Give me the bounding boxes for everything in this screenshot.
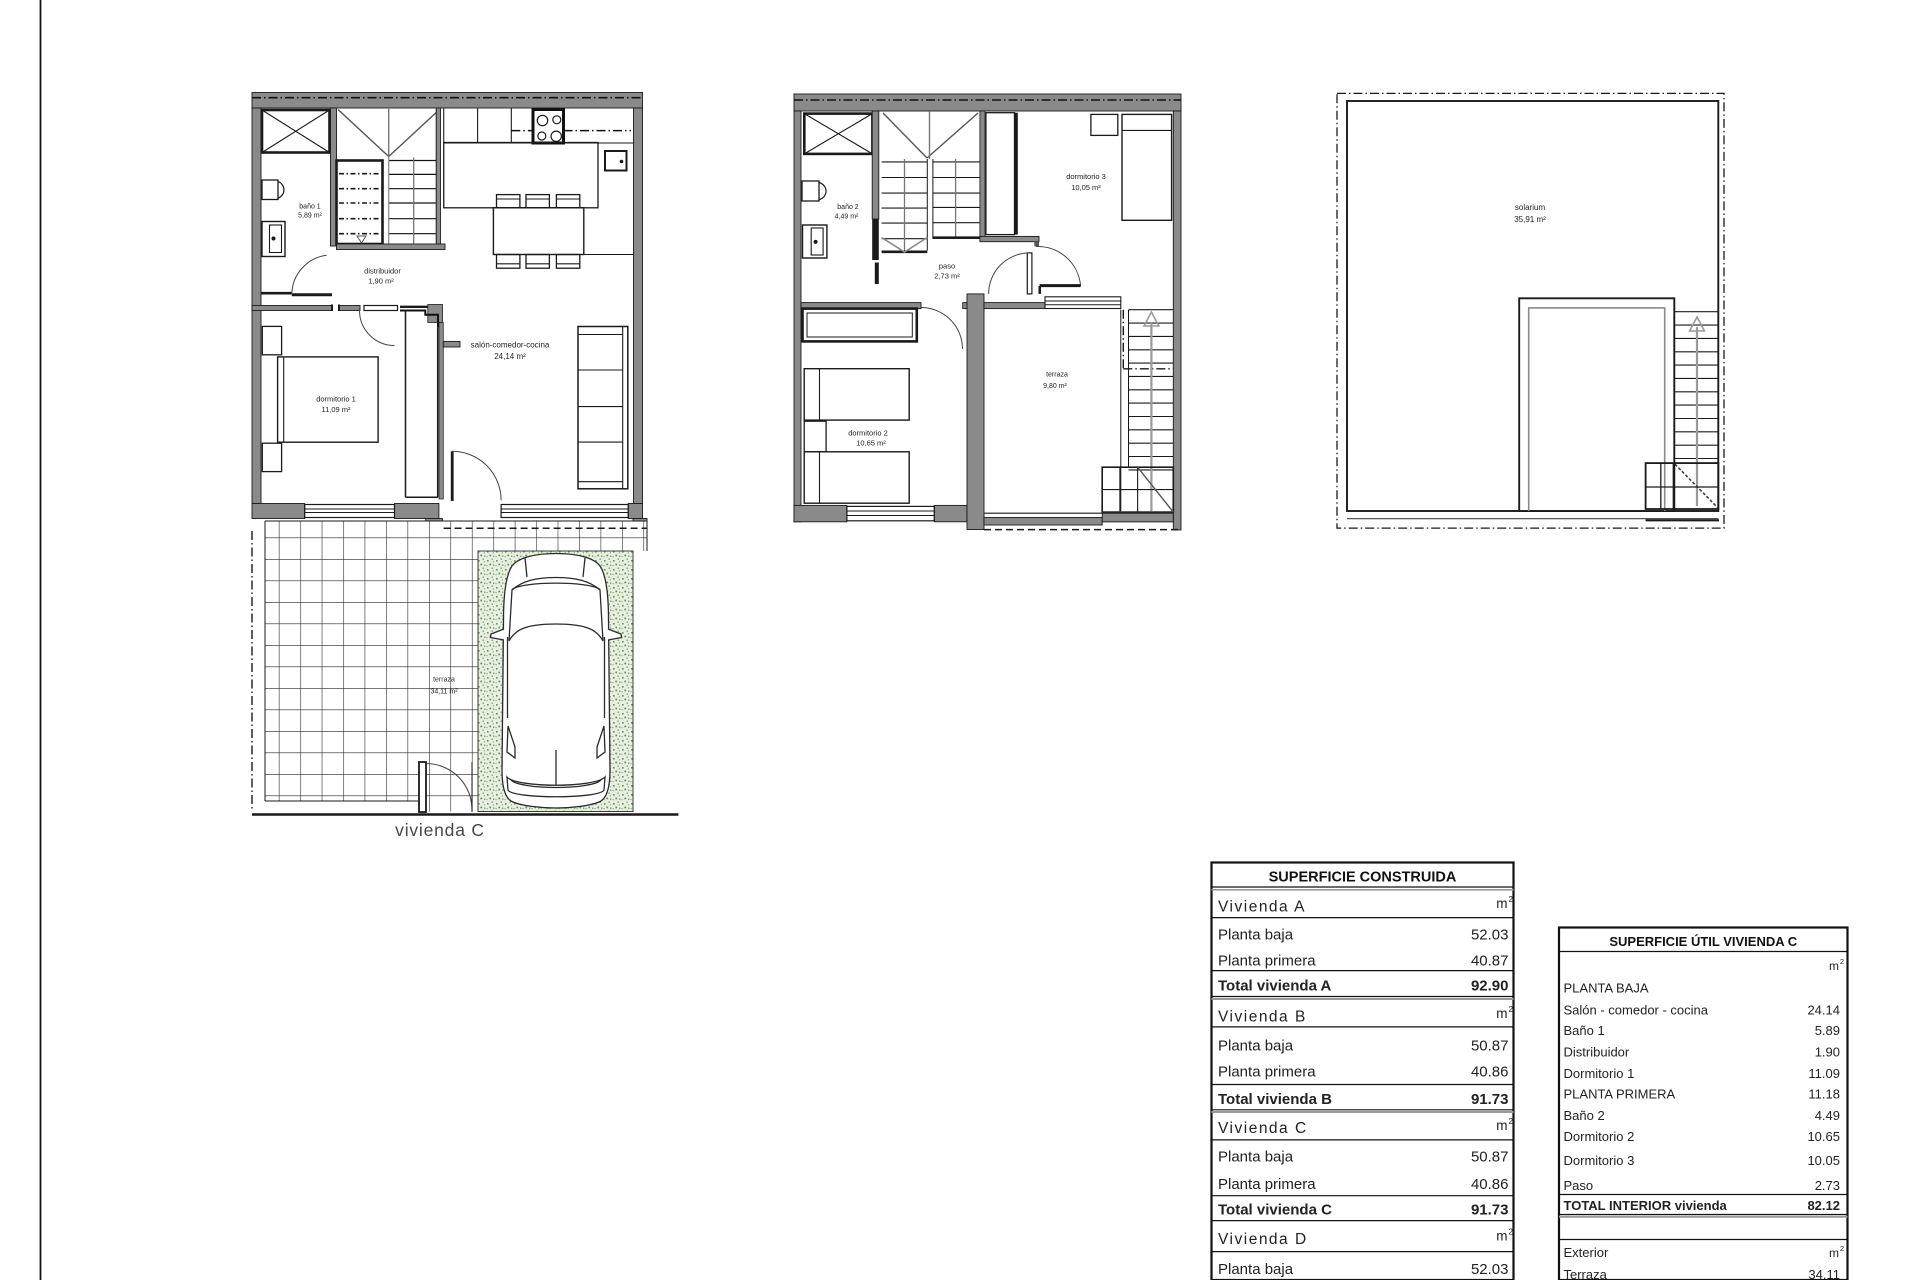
svg-text:baño 1: baño 1 bbox=[299, 204, 321, 211]
svg-text:2.73: 2.73 bbox=[1815, 1178, 1840, 1193]
svg-text:Planta baja: Planta baja bbox=[1218, 927, 1294, 944]
svg-text:baño 2: baño 2 bbox=[837, 204, 859, 211]
svg-text:1.90: 1.90 bbox=[1815, 1045, 1840, 1060]
svg-text:Planta baja: Planta baja bbox=[1218, 1149, 1294, 1166]
svg-text:Total vivienda A: Total vivienda A bbox=[1218, 978, 1332, 995]
svg-text:m: m bbox=[1496, 1006, 1507, 1021]
svg-text:solarium: solarium bbox=[1515, 203, 1546, 212]
svg-text:Vivienda A: Vivienda A bbox=[1218, 899, 1306, 916]
svg-text:Exterior: Exterior bbox=[1564, 1245, 1609, 1260]
svg-text:m: m bbox=[1496, 896, 1507, 911]
svg-text:11,09 m²: 11,09 m² bbox=[321, 405, 351, 414]
svg-text:10.65: 10.65 bbox=[1807, 1129, 1840, 1144]
svg-text:9,80 m²: 9,80 m² bbox=[1043, 383, 1067, 390]
svg-text:SUPERFICIE ÚTIL VIVIENDA C: SUPERFICIE ÚTIL VIVIENDA C bbox=[1609, 934, 1797, 949]
svg-text:Dormitorio 2: Dormitorio 2 bbox=[1564, 1129, 1635, 1144]
svg-text:34,11 m²: 34,11 m² bbox=[430, 689, 458, 696]
svg-text:Planta primera: Planta primera bbox=[1218, 1064, 1316, 1081]
svg-text:4.49: 4.49 bbox=[1815, 1108, 1840, 1123]
svg-text:Planta primera: Planta primera bbox=[1218, 953, 1316, 970]
svg-text:2,73 m²: 2,73 m² bbox=[934, 272, 960, 281]
svg-text:34.11: 34.11 bbox=[1808, 1267, 1840, 1280]
svg-text:m: m bbox=[1496, 1229, 1507, 1244]
svg-text:24.14: 24.14 bbox=[1807, 1003, 1840, 1018]
svg-text:dormitorio 2: dormitorio 2 bbox=[848, 429, 888, 438]
svg-text:52.03: 52.03 bbox=[1471, 927, 1509, 944]
svg-text:2: 2 bbox=[1840, 1244, 1844, 1253]
svg-text:Dormitorio 1: Dormitorio 1 bbox=[1564, 1066, 1635, 1081]
svg-text:11.18: 11.18 bbox=[1808, 1087, 1840, 1102]
svg-text:1,90 m²: 1,90 m² bbox=[368, 277, 394, 286]
svg-text:dormitorio 3: dormitorio 3 bbox=[1066, 172, 1106, 181]
svg-text:salón-comedor-cocina: salón-comedor-cocina bbox=[471, 341, 550, 350]
svg-text:Vivienda D: Vivienda D bbox=[1218, 1231, 1308, 1248]
svg-text:distribuidor: distribuidor bbox=[364, 267, 401, 276]
svg-text:2: 2 bbox=[1509, 1005, 1514, 1014]
svg-text:Terraza: Terraza bbox=[1564, 1267, 1608, 1280]
svg-text:TOTAL INTERIOR vivienda: TOTAL INTERIOR vivienda bbox=[1564, 1198, 1728, 1213]
svg-text:10,65 m²: 10,65 m² bbox=[856, 439, 886, 448]
svg-text:PLANTA PRIMERA: PLANTA PRIMERA bbox=[1564, 1087, 1676, 1102]
svg-text:Planta baja: Planta baja bbox=[1218, 1038, 1294, 1055]
svg-text:Distribuidor: Distribuidor bbox=[1564, 1045, 1630, 1060]
svg-text:91.73: 91.73 bbox=[1471, 1202, 1509, 1219]
svg-text:Total vivienda C: Total vivienda C bbox=[1218, 1202, 1332, 1219]
svg-text:10.05: 10.05 bbox=[1807, 1153, 1840, 1168]
svg-text:4,49 m²: 4,49 m² bbox=[835, 214, 859, 221]
svg-text:Vivienda C: Vivienda C bbox=[1218, 1120, 1308, 1137]
svg-text:Planta primera: Planta primera bbox=[1218, 1176, 1316, 1193]
svg-text:Vivienda B: Vivienda B bbox=[1218, 1009, 1307, 1026]
svg-text:Baño 1: Baño 1 bbox=[1564, 1023, 1605, 1038]
svg-text:paso: paso bbox=[939, 262, 955, 271]
svg-text:2: 2 bbox=[1509, 1228, 1514, 1237]
svg-text:50.87: 50.87 bbox=[1471, 1149, 1509, 1166]
svg-text:Paso: Paso bbox=[1564, 1178, 1594, 1193]
svg-text:91.73: 91.73 bbox=[1471, 1091, 1509, 1108]
svg-text:SUPERFICIE CONSTRUIDA: SUPERFICIE CONSTRUIDA bbox=[1269, 870, 1457, 886]
svg-text:82.12: 82.12 bbox=[1807, 1198, 1840, 1213]
svg-text:2: 2 bbox=[1509, 1117, 1514, 1126]
svg-text:vivienda C: vivienda C bbox=[395, 820, 485, 840]
svg-text:2: 2 bbox=[1840, 957, 1844, 966]
svg-text:40.87: 40.87 bbox=[1471, 953, 1509, 970]
svg-text:Salón - comedor - cocina: Salón - comedor - cocina bbox=[1564, 1003, 1709, 1018]
svg-text:35,91 m²: 35,91 m² bbox=[1514, 215, 1546, 224]
svg-text:2: 2 bbox=[1509, 895, 1514, 904]
svg-text:52.03: 52.03 bbox=[1471, 1261, 1509, 1278]
svg-text:40.86: 40.86 bbox=[1471, 1176, 1509, 1193]
svg-text:92.90: 92.90 bbox=[1471, 978, 1509, 995]
svg-text:terraza: terraza bbox=[1046, 372, 1068, 379]
svg-text:5.89: 5.89 bbox=[1815, 1023, 1840, 1038]
svg-text:m: m bbox=[1829, 959, 1839, 973]
svg-text:10,05 m²: 10,05 m² bbox=[1071, 183, 1101, 192]
svg-text:m: m bbox=[1829, 1246, 1839, 1260]
svg-text:PLANTA BAJA: PLANTA BAJA bbox=[1564, 981, 1649, 996]
svg-text:40.86: 40.86 bbox=[1471, 1064, 1509, 1081]
svg-text:50.87: 50.87 bbox=[1471, 1038, 1509, 1055]
svg-text:11.09: 11.09 bbox=[1808, 1066, 1840, 1081]
svg-text:dormitorio 1: dormitorio 1 bbox=[316, 395, 356, 404]
svg-text:Total vivienda B: Total vivienda B bbox=[1218, 1091, 1332, 1108]
svg-text:m: m bbox=[1496, 1118, 1507, 1133]
svg-text:Baño 2: Baño 2 bbox=[1564, 1108, 1605, 1123]
svg-text:Planta baja: Planta baja bbox=[1218, 1261, 1294, 1278]
svg-text:5,89 m²: 5,89 m² bbox=[298, 213, 322, 220]
svg-text:Dormitorio 3: Dormitorio 3 bbox=[1564, 1153, 1635, 1168]
svg-text:24,14 m²: 24,14 m² bbox=[494, 352, 526, 361]
svg-text:terraza: terraza bbox=[433, 677, 455, 684]
